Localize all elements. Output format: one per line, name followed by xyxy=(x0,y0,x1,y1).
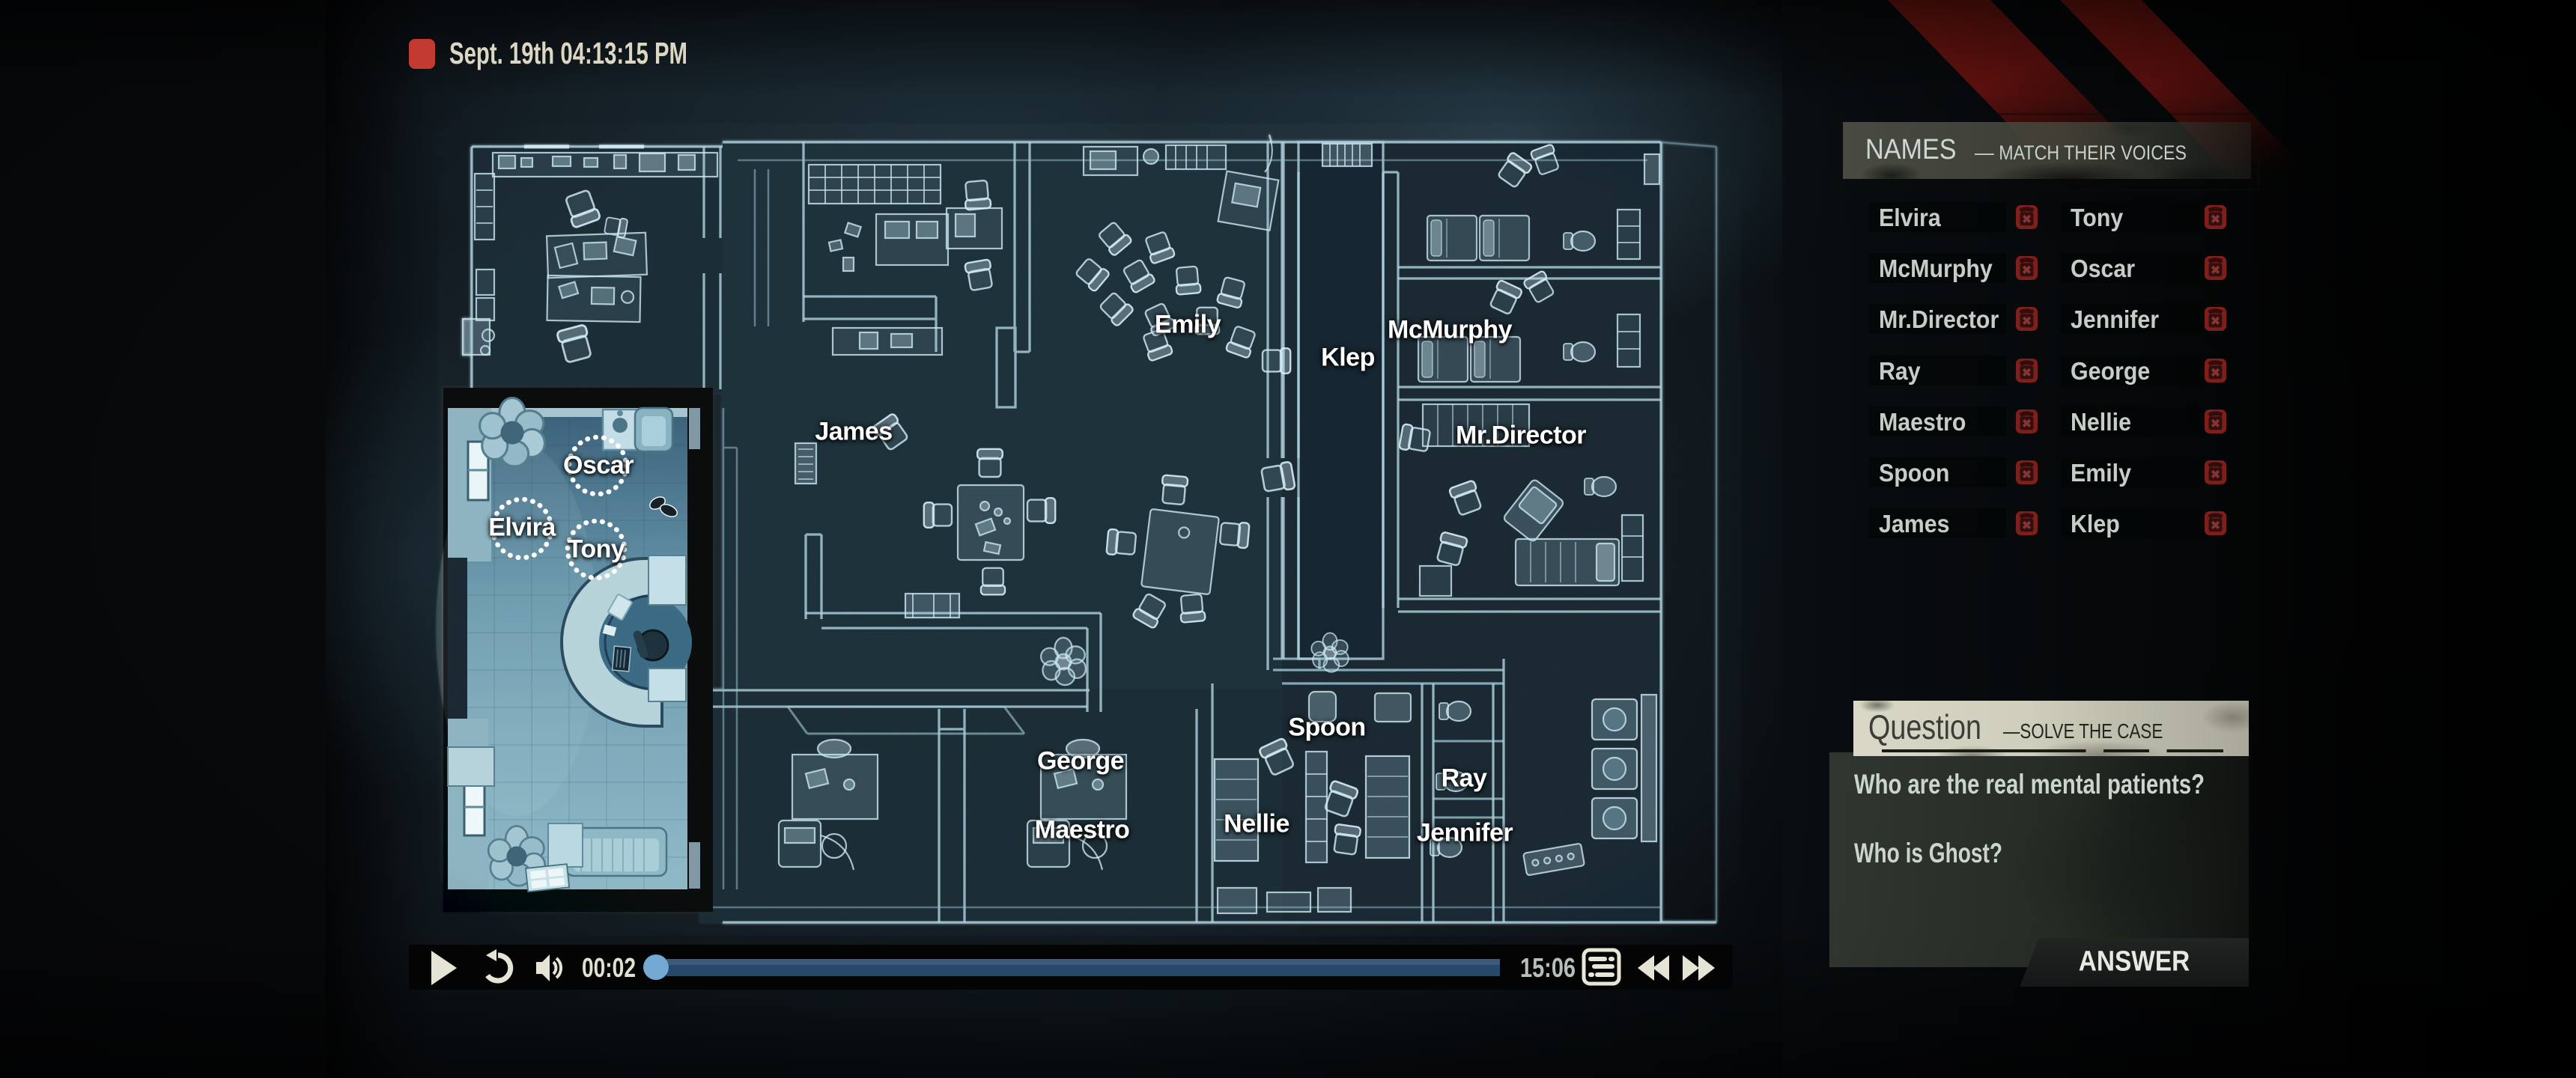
svg-text:Sept. 19th 04:13:15 PM: Sept. 19th 04:13:15 PM xyxy=(449,36,687,70)
svg-text:Who is Ghost?: Who is Ghost? xyxy=(1854,838,2002,868)
svg-text:00:02: 00:02 xyxy=(582,952,636,983)
svg-text:15:06: 15:06 xyxy=(1520,952,1576,983)
svg-text:Who are the real mental patien: Who are the real mental patients? xyxy=(1854,769,2205,800)
